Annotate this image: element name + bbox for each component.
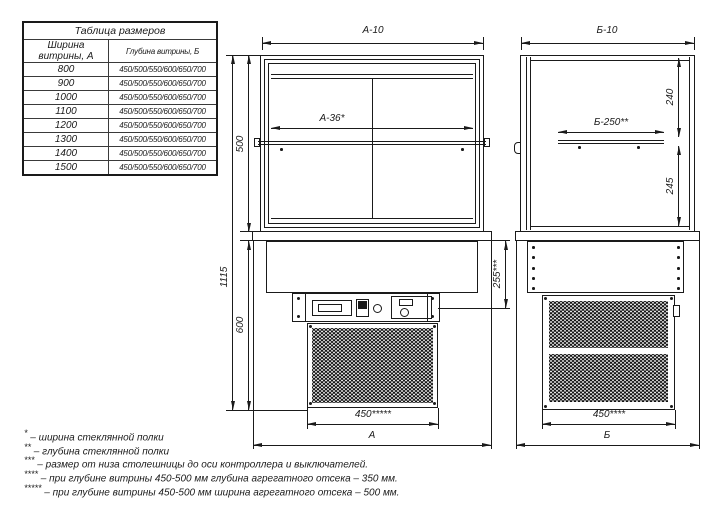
ext-line bbox=[483, 37, 484, 50]
technical-drawing-canvas: Таблица размеров Ширина витрины, А Глуби… bbox=[0, 0, 720, 517]
dim-label-controller-offset: 255*** bbox=[492, 254, 504, 294]
footnote-text: – ширина стеклянной полки bbox=[30, 432, 163, 443]
socket-slot bbox=[399, 299, 413, 306]
width-value: 1500 bbox=[23, 161, 109, 176]
front-countertop bbox=[252, 231, 492, 241]
shelf-support-dot bbox=[578, 146, 581, 149]
depth-options: 450/500/550/600/650/700 bbox=[109, 147, 218, 161]
back-wall-line bbox=[689, 57, 690, 230]
footnote: ** – глубина стеклянной полки bbox=[24, 447, 484, 458]
latch bbox=[673, 305, 680, 317]
screw-icon bbox=[532, 267, 535, 270]
ext-line bbox=[542, 410, 543, 429]
front-glass-line bbox=[530, 57, 531, 230]
dim-label-base-height: 600 bbox=[235, 305, 247, 345]
size-table-title: Таблица размеров bbox=[23, 22, 217, 40]
width-value: 1200 bbox=[23, 119, 109, 133]
depth-options: 450/500/550/600/650/700 bbox=[109, 105, 218, 119]
dim-label-b10: Б-10 bbox=[574, 25, 640, 37]
arrow-down-icon bbox=[677, 128, 681, 137]
depth-options: 450/500/550/600/650/700 bbox=[109, 161, 218, 176]
depth-options: 450/500/550/600/650/700 bbox=[109, 91, 218, 105]
ext-line bbox=[694, 37, 695, 50]
arrow-left-icon bbox=[516, 443, 525, 447]
screw-icon bbox=[297, 315, 300, 318]
dim-line bbox=[521, 43, 694, 44]
footnote-marker: ** bbox=[24, 442, 31, 452]
power-switch-rocker bbox=[358, 301, 367, 309]
screw-icon bbox=[677, 246, 680, 249]
dim-label-unit-width: 450***** bbox=[322, 409, 424, 421]
ext-line bbox=[438, 408, 439, 429]
width-value: 1000 bbox=[23, 91, 109, 105]
front-glass-line bbox=[526, 57, 527, 230]
ext-line bbox=[253, 241, 254, 449]
footnote-text: – при глубине витрины 450-500 мм ширина … bbox=[44, 487, 399, 498]
arrow-right-icon bbox=[464, 126, 473, 130]
footnote-text: – при глубине витрины 450-500 мм глубина… bbox=[41, 473, 398, 484]
screw-icon bbox=[309, 402, 312, 405]
table-row: 1100450/500/550/600/650/700 bbox=[23, 105, 217, 119]
dim-label-below-shelf: 245 bbox=[665, 166, 677, 206]
shelf-support-dot bbox=[280, 148, 283, 151]
footnote-text: – глубина стеклянной полки bbox=[34, 446, 169, 457]
depth-options: 450/500/550/600/650/700 bbox=[109, 133, 218, 147]
dim-label-glass-height: 500 bbox=[235, 124, 247, 164]
dim-line bbox=[248, 241, 249, 410]
screw-icon bbox=[677, 277, 680, 280]
panel-divider-line bbox=[305, 293, 306, 322]
screw-icon bbox=[532, 246, 535, 249]
case-inner-line bbox=[531, 60, 689, 61]
sliding-door-divider bbox=[372, 78, 373, 218]
footnote-marker: ***** bbox=[24, 483, 42, 493]
footnote-text: – размер от низа столешницы до оси контр… bbox=[37, 460, 368, 471]
table-row: 900450/500/550/600/650/700 bbox=[23, 77, 217, 91]
screw-icon bbox=[670, 405, 673, 408]
grille-mesh bbox=[549, 301, 668, 348]
footnote-marker: *** bbox=[24, 455, 35, 465]
dim-label-shelf-depth: Б-250** bbox=[568, 117, 654, 129]
arrow-up-icon bbox=[677, 58, 681, 67]
arrow-right-icon bbox=[685, 41, 694, 45]
width-value: 1300 bbox=[23, 133, 109, 147]
arrow-left-icon bbox=[271, 126, 280, 130]
table-row: 800450/500/550/600/650/700 bbox=[23, 63, 217, 77]
table-row: 1000450/500/550/600/650/700 bbox=[23, 91, 217, 105]
arrow-right-icon bbox=[655, 130, 664, 134]
width-value: 800 bbox=[23, 63, 109, 77]
size-table-col-width: Ширина витрины, А bbox=[23, 40, 109, 63]
screw-icon bbox=[677, 287, 680, 290]
table-row: 1300450/500/550/600/650/700 bbox=[23, 133, 217, 147]
arrow-left-icon bbox=[262, 41, 271, 45]
screw-icon bbox=[532, 287, 535, 290]
table-row: 1400450/500/550/600/650/700 bbox=[23, 147, 217, 161]
dim-line bbox=[678, 146, 679, 226]
screw-icon bbox=[544, 405, 547, 408]
dim-line bbox=[271, 128, 473, 129]
side-countertop bbox=[515, 231, 700, 241]
glass-shelf bbox=[558, 143, 664, 144]
footnote: ***** – при глубине витрины 450-500 мм ш… bbox=[24, 488, 484, 499]
screw-icon bbox=[309, 325, 312, 328]
arrow-right-icon bbox=[429, 422, 438, 426]
shelf-bracket bbox=[254, 138, 260, 147]
side-base-body bbox=[527, 241, 684, 293]
arrow-right-icon bbox=[666, 422, 675, 426]
ext-line bbox=[438, 308, 510, 309]
glass-shelf bbox=[558, 140, 664, 141]
table-row: 1200450/500/550/600/650/700 bbox=[23, 119, 217, 133]
ext-line bbox=[516, 241, 517, 449]
dim-line bbox=[542, 424, 675, 425]
case-inner-line bbox=[531, 226, 689, 227]
grille-mesh bbox=[549, 354, 668, 402]
dim-line bbox=[232, 55, 233, 410]
dim-label-unit-depth: 450**** bbox=[558, 409, 660, 421]
dim-line bbox=[516, 445, 699, 446]
footnote-marker: **** bbox=[24, 469, 38, 479]
screw-icon bbox=[532, 256, 535, 259]
arrow-down-icon bbox=[231, 401, 235, 410]
door-track-line bbox=[271, 74, 473, 75]
door-handle bbox=[514, 142, 521, 154]
width-value: 1100 bbox=[23, 105, 109, 119]
width-value: 900 bbox=[23, 77, 109, 91]
screw-icon bbox=[433, 325, 436, 328]
grille-mesh bbox=[312, 328, 433, 403]
footnote: **** – при глубине витрины 450-500 мм гл… bbox=[24, 474, 484, 485]
dim-line bbox=[262, 43, 483, 44]
depth-options: 450/500/550/600/650/700 bbox=[109, 119, 218, 133]
arrow-down-icon bbox=[677, 217, 681, 226]
dim-label-a36: А-36* bbox=[290, 113, 374, 125]
screw-icon bbox=[677, 256, 680, 259]
footnote-marker: * bbox=[24, 428, 28, 438]
indicator-lamp bbox=[373, 304, 382, 313]
arrow-up-icon bbox=[504, 241, 508, 250]
socket-round bbox=[400, 308, 409, 317]
shelf-bracket bbox=[484, 138, 490, 147]
screw-icon bbox=[677, 267, 680, 270]
arrow-up-icon bbox=[677, 146, 681, 155]
dim-label-overall-depth: Б bbox=[578, 430, 636, 442]
table-row: 1500450/500/550/600/650/700 bbox=[23, 161, 217, 176]
screw-icon bbox=[297, 297, 300, 300]
arrow-up-icon bbox=[247, 241, 251, 250]
dim-label-a10: А-10 bbox=[340, 25, 406, 37]
glass-shelf bbox=[258, 141, 486, 142]
arrow-down-icon bbox=[247, 223, 251, 232]
dim-line bbox=[505, 241, 506, 308]
dim-label-total-height: 1115 bbox=[219, 257, 231, 297]
arrow-up-icon bbox=[231, 55, 235, 64]
arrow-up-icon bbox=[247, 55, 251, 64]
arrow-left-icon bbox=[558, 130, 567, 134]
front-base-body bbox=[266, 241, 478, 293]
width-value: 1400 bbox=[23, 147, 109, 161]
dim-line bbox=[558, 132, 664, 133]
screw-icon bbox=[532, 277, 535, 280]
ext-line bbox=[675, 410, 676, 429]
ext-line bbox=[226, 410, 307, 411]
screw-icon bbox=[433, 402, 436, 405]
footnote: *** – размер от низа столешницы до оси к… bbox=[24, 460, 484, 471]
screw-icon bbox=[670, 297, 673, 300]
arrow-left-icon bbox=[521, 41, 530, 45]
dim-line bbox=[248, 55, 249, 232]
dim-line bbox=[307, 424, 438, 425]
dim-line bbox=[678, 58, 679, 137]
dim-label-above-shelf: 240 bbox=[665, 77, 677, 117]
ext-line bbox=[699, 241, 700, 449]
screw-icon bbox=[544, 297, 547, 300]
arrow-left-icon bbox=[542, 422, 551, 426]
size-table-col-depth: Глубина витрины, Б bbox=[109, 40, 218, 63]
door-track-line bbox=[271, 218, 473, 219]
arrow-down-icon bbox=[504, 299, 508, 308]
arrow-right-icon bbox=[690, 443, 699, 447]
footnotes: * – ширина стеклянной полки ** – глубина… bbox=[24, 433, 484, 502]
size-table: Таблица размеров Ширина витрины, А Глуби… bbox=[22, 21, 218, 176]
glass-shelf bbox=[258, 144, 486, 145]
arrow-down-icon bbox=[247, 401, 251, 410]
depth-options: 450/500/550/600/650/700 bbox=[109, 63, 218, 77]
shelf-support-dot bbox=[637, 146, 640, 149]
arrow-right-icon bbox=[474, 41, 483, 45]
controller-screen bbox=[318, 304, 342, 312]
depth-options: 450/500/550/600/650/700 bbox=[109, 77, 218, 91]
footnote: * – ширина стеклянной полки bbox=[24, 433, 484, 444]
shelf-support-dot bbox=[461, 148, 464, 151]
arrow-left-icon bbox=[307, 422, 316, 426]
